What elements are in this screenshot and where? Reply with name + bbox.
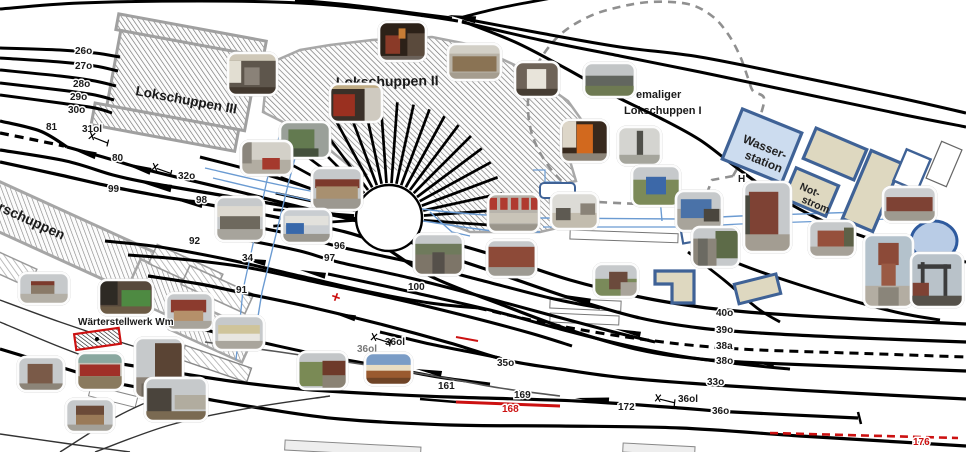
svg-text:38o: 38o (716, 356, 733, 367)
svg-text:36o: 36o (712, 406, 729, 417)
svg-text:29o: 29o (70, 92, 87, 103)
svg-text:H: H (738, 174, 745, 185)
svg-text:172: 172 (618, 402, 635, 413)
svg-text:96: 96 (334, 241, 346, 252)
svg-text:31ol: 31ol (82, 124, 102, 135)
svg-text:168: 168 (502, 404, 519, 415)
svg-text:32o: 32o (178, 171, 195, 182)
svg-text:97: 97 (324, 253, 336, 264)
svg-text:100: 100 (408, 282, 425, 293)
svg-text:80: 80 (112, 153, 124, 164)
svg-text:26o: 26o (75, 46, 92, 57)
svg-text:98: 98 (196, 195, 208, 206)
svg-text:27o: 27o (75, 61, 92, 72)
svg-text:99: 99 (108, 184, 120, 195)
svg-text:35o: 35o (497, 358, 514, 369)
svg-text:33o: 33o (707, 377, 724, 388)
svg-text:emaliger: emaliger (636, 89, 682, 101)
svg-text:176: 176 (913, 437, 930, 448)
svg-text:28o: 28o (73, 79, 90, 90)
svg-text:30o: 30o (68, 105, 85, 116)
svg-text:81: 81 (46, 122, 58, 133)
svg-text:92: 92 (189, 236, 201, 247)
svg-text:36ol: 36ol (678, 394, 698, 405)
svg-text:169: 169 (514, 390, 531, 401)
svg-text:Wärterstellwerk Wm: Wärterstellwerk Wm (78, 317, 174, 328)
svg-text:38a: 38a (716, 341, 733, 352)
svg-text:161: 161 (438, 381, 455, 392)
svg-text:39o: 39o (716, 325, 733, 336)
svg-text:34: 34 (242, 253, 254, 264)
svg-text:40o: 40o (716, 308, 733, 319)
svg-text:91: 91 (236, 285, 248, 296)
